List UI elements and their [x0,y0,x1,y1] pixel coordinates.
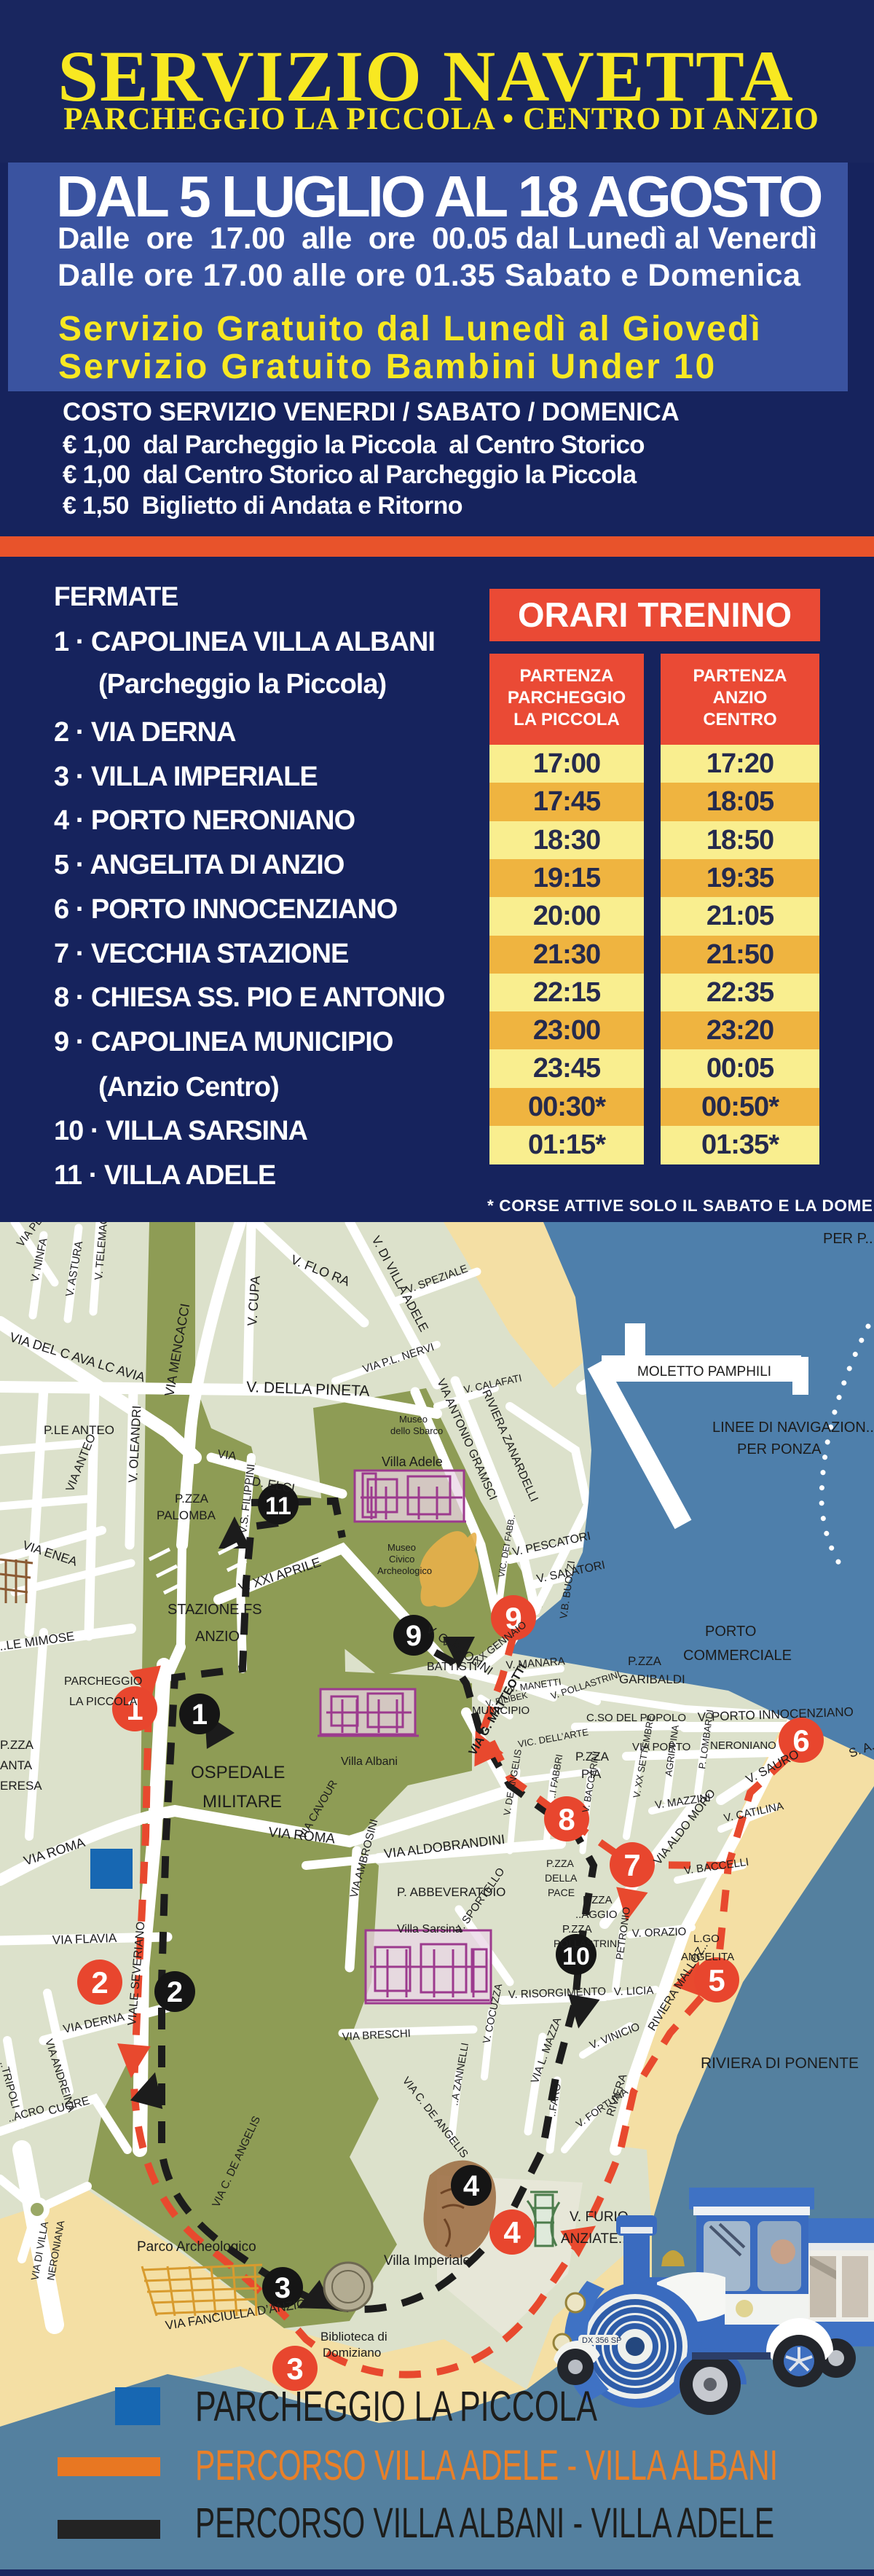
svg-text:P.ZZA: P.ZZA [583,1894,613,1906]
svg-text:L.GO: L.GO [693,1933,720,1945]
svg-text:ANZIATE..: ANZIATE.. [561,2231,626,2247]
svg-text:DELLA: DELLA [545,1872,578,1884]
svg-text:NERONIANO: NERONIANO [710,1739,776,1752]
svg-text:Villa Albani: Villa Albani [341,1755,398,1768]
svg-text:VIA PORTO: VIA PORTO [632,1741,690,1753]
svg-text:4: 4 [503,2215,521,2250]
svg-text:VIA: VIA [216,1448,237,1463]
svg-text:GARIBALDI: GARIBALDI [619,1672,685,1686]
svg-text:Biblioteca di: Biblioteca di [320,2330,387,2344]
svg-text:V. ORAZIO: V. ORAZIO [632,1925,687,1940]
svg-text:LINEE DI NAVIGAZION..: LINEE DI NAVIGAZION.. [712,1420,874,1436]
svg-text:7: 7 [623,1848,640,1882]
svg-text:RIVIERA DI PONENTE: RIVIERA DI PONENTE [701,2055,859,2072]
svg-text:LA PICCOLA: LA PICCOLA [69,1696,138,1708]
svg-text:..AGGIO: ..AGGIO [575,1908,618,1921]
svg-text:PARCHEGGIO: PARCHEGGIO [64,1675,142,1688]
svg-text:PARCHEGGIO LA PICCOLA: PARCHEGGIO LA PICCOLA [195,2383,597,2430]
svg-text:DX 356 SP: DX 356 SP [582,2336,621,2345]
svg-text:ERESA: ERESA [0,1779,42,1793]
svg-text:OSPEDALE: OSPEDALE [191,1763,285,1782]
svg-text:VIA FLAVIA: VIA FLAVIA [52,1931,117,1947]
svg-text:C.SO DEL POPOLO: C.SO DEL POPOLO [586,1712,686,1724]
svg-text:PER PONZA: PER PONZA [737,1441,822,1457]
svg-text:COMMERCIALE: COMMERCIALE [683,1648,792,1664]
svg-text:P.ZZA: P.ZZA [546,1857,575,1869]
svg-text:ANTA: ANTA [0,1758,33,1772]
svg-text:Villa Adele: Villa Adele [382,1455,443,1469]
svg-text:PACE: PACE [548,1887,575,1898]
svg-text:2: 2 [91,1965,108,2000]
svg-text:Museo: Museo [399,1414,428,1425]
svg-text:8: 8 [558,1802,575,1836]
svg-text:2: 2 [167,1976,183,2008]
svg-text:5: 5 [708,1963,725,1997]
svg-text:Archeologico: Archeologico [377,1565,432,1576]
svg-text:3: 3 [286,2352,303,2386]
svg-text:MILITARE: MILITARE [202,1792,282,1812]
svg-text:P.LE ANTEO: P.LE ANTEO [44,1423,114,1437]
svg-text:Villa Imperiale: Villa Imperiale [384,2253,471,2268]
svg-text:STAZIONE FS: STAZIONE FS [168,1602,262,1618]
svg-text:PALOMBA: PALOMBA [157,1508,216,1522]
svg-text:Domiziano: Domiziano [323,2346,381,2360]
svg-text:9: 9 [406,1620,422,1652]
svg-text:V. LICIA: V. LICIA [614,1984,654,1998]
svg-text:Civico: Civico [389,1554,414,1565]
svg-text:P.ZZA: P.ZZA [562,1923,592,1935]
svg-text:11: 11 [265,1492,291,1520]
svg-text:P.ZZA: P.ZZA [628,1654,662,1668]
svg-text:PORTO: PORTO [705,1624,756,1640]
svg-text:4: 4 [463,2170,480,2202]
svg-text:PER P..: PER P.. [823,1231,873,1247]
svg-text:P.ZZA: P.ZZA [175,1492,209,1506]
svg-text:Museo: Museo [387,1542,416,1553]
svg-text:POLLASTRINI: POLLASTRINI [554,1938,620,1949]
svg-text:P.ZZA: P.ZZA [0,1738,34,1752]
svg-text:MOLETTO PAMPHILI: MOLETTO PAMPHILI [637,1364,771,1379]
svg-text:ANZIO: ANZIO [195,1629,240,1645]
svg-text:PERCORSO VILLA ADELE - VILLA: PERCORSO VILLA ADELE - VILLA ALBANI [195,2442,778,2489]
svg-text:1: 1 [192,1699,208,1731]
svg-text:PERCORSO VILLA ALBANI - VILLA: PERCORSO VILLA ALBANI - VILLA ADELE [195,2499,774,2547]
svg-text:Parco Archeologico: Parco Archeologico [137,2239,256,2255]
svg-text:dello Sbarco: dello Sbarco [390,1425,443,1436]
